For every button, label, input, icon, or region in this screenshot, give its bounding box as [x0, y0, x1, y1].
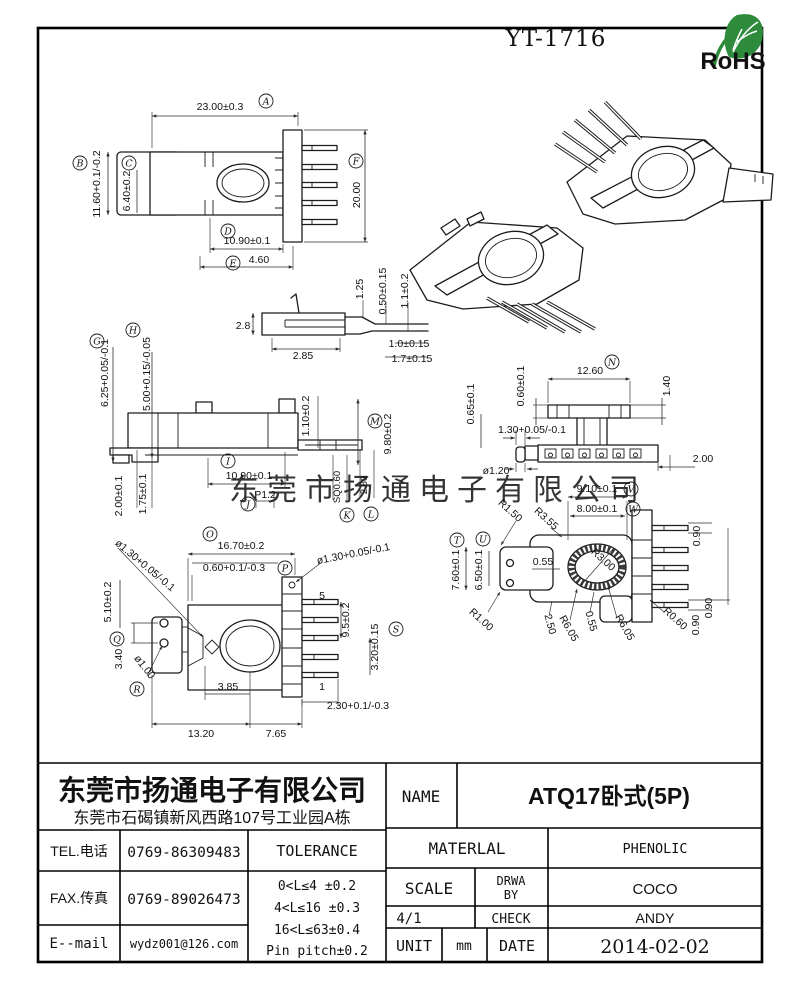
dim-J-val: P1.2 [254, 489, 276, 501]
dim-3-85: 3.85 [218, 681, 239, 693]
letter-A: A [262, 97, 270, 108]
dim-R6-05a: R6.05 [556, 613, 580, 643]
letter-T: T [454, 536, 461, 547]
letter-I: I [225, 457, 230, 468]
dim-3-20: 3.20±0.15 [369, 624, 381, 671]
tel-value: 0769-86309483 [127, 845, 241, 861]
iso-pins-lower [487, 298, 595, 332]
tolerance-line-2: 4<L≤16 ±0.3 [274, 901, 360, 916]
check-label: CHECK [491, 912, 530, 927]
letter-D: D [223, 227, 232, 238]
date-value: 2014-02-02 [600, 936, 710, 958]
dim-2-00: 2.00±0.1 [113, 475, 125, 516]
unit-value: mm [456, 939, 472, 954]
material-label: MATERLAL [428, 839, 505, 858]
dim-1-30: 1.30+0.05/-0.1 [498, 424, 566, 436]
dim-0-50: 0.50±0.15 [377, 268, 389, 315]
company-name: 东莞市扬通电子有限公司 [58, 774, 366, 806]
tolerance-line-1: 0<L≤4 ±0.2 [278, 879, 356, 894]
pins-core-view [652, 526, 688, 608]
dim-M-val: 9.80±0.2 [382, 413, 394, 454]
name-label: NAME [402, 787, 441, 806]
dim-0-55a: 0.55 [533, 556, 554, 568]
dim-H: 5.00+0.15/-0.05 [141, 337, 153, 411]
dim-7-60: 7.60±0.1 [450, 549, 462, 590]
dim-1-75: 1.75±0.1 [137, 473, 149, 514]
dim-K-val: SQ0.60 [332, 471, 343, 503]
dim-12-60: 12.60 [577, 365, 603, 377]
iso-bobbin-upper [555, 102, 773, 224]
date-label: DATE [499, 937, 535, 955]
dim-0-90a: 0.90 [691, 526, 703, 547]
rohs-label: RoHS [700, 48, 765, 75]
dim-B: 11.60+0.1/-0.2 [91, 150, 103, 217]
unit-label: UNIT [396, 937, 432, 955]
dim-0-60b: 0.60+0.1/-0.3 [203, 562, 265, 574]
dim-G: 6.25+0.05/-0.1 [99, 339, 111, 407]
dim-E: 4.60 [249, 254, 270, 266]
dim-dia-1-30-left: ø1.30+0.05/-0.1 [113, 537, 178, 594]
view-pin-detail: 2.8 1.25 0.50±0.15 1.1±0.2 2.85 1.0±0.15… [236, 268, 433, 365]
dim-2-8: 2.8 [236, 320, 251, 332]
dim-9-10: 9.10±0.1 [577, 483, 618, 495]
dim-0-90c: 0.90 [690, 615, 702, 636]
dim-dia-1-20: ø1.20 [483, 465, 510, 477]
letter-P: P [281, 564, 289, 575]
letter-B: B [76, 159, 84, 170]
dim-1-10: 1.10±0.2 [300, 395, 312, 436]
letter-H: H [128, 326, 138, 337]
letter-O: O [206, 530, 214, 541]
dim-1-0: 1.0±0.15 [389, 338, 430, 350]
dim-A: 23.00±0.3 [197, 101, 244, 113]
letter-G: G [93, 337, 101, 348]
letter-M: M [369, 417, 380, 428]
drwa-by-label-2: BY [504, 888, 519, 902]
dim-2-00b: 2.00 [693, 453, 714, 465]
pin-number-5: 5 [319, 590, 325, 602]
dim-1-1: 1.1±0.2 [399, 273, 411, 308]
letter-R: R [132, 685, 140, 696]
letter-F: F [352, 157, 360, 168]
scale-value: 4/1 [396, 911, 421, 927]
dim-6-50: 6.50±0.1 [473, 549, 485, 590]
letter-E: E [229, 259, 237, 270]
tel-label: TEL.电话 [50, 843, 108, 859]
dim-2-50: 2.50 [541, 613, 558, 636]
letter-U: U [479, 535, 488, 546]
dim-1-40: 1.40 [661, 376, 673, 397]
dim-3-40: 3.40 [113, 649, 125, 670]
tolerance-line-4: Pin pitch±0.2 [266, 944, 368, 959]
dim-8-00: 8.00±0.1 [577, 503, 618, 515]
drwa-by-value: COCO [633, 881, 678, 898]
view-end: 12.60 0.60±0.1 1.40 0.65±0.1 1.30+0.05/-… [465, 365, 713, 477]
title-block: 东莞市扬通电子有限公司 东莞市石碣镇新风西路107号工业园A栋 TEL.电话 0… [38, 763, 762, 962]
email-value: wydz001@126.com [130, 937, 238, 951]
check-value: ANDY [636, 910, 676, 926]
pins-top-view [302, 146, 337, 225]
letter-S: S [393, 625, 400, 636]
fax-label: FAX.传真 [50, 890, 108, 906]
drawing-sheet: YT-1716 RoHS 东莞市扬通电子有限公司 23.00±0.3 [0, 0, 800, 990]
letter-Q: Q [113, 635, 121, 646]
isometric-view [410, 102, 773, 332]
dim-16-70: 16.70±0.2 [218, 540, 265, 552]
view-core: 9.10±0.1 8.00±0.1 7.60±0.1 6.50±0.1 R1.5… [450, 483, 730, 644]
tolerance-line-3: 16<L≤63±0.4 [274, 923, 360, 938]
pins-bottom-view [302, 600, 338, 678]
dim-0-55b: 0.55 [582, 610, 599, 633]
drwa-by-label-1: DRWA [497, 874, 527, 888]
view-top: 23.00±0.3 11.60+0.1/-0.2 6.40±0.2 10.90±… [91, 101, 368, 270]
rohs-logo: RoHS [700, 14, 765, 75]
dim-F: 20.00 [351, 182, 363, 208]
dim-0-60: 0.60±0.1 [515, 365, 527, 406]
dim-L-val: 2.80 [359, 476, 370, 495]
dim-0-65: 0.65±0.1 [465, 383, 477, 424]
company-address: 东莞市石碣镇新风西路107号工业园A栋 [73, 809, 350, 827]
material-value: PHENOLIC [622, 841, 687, 857]
dim-1-25: 1.25 [354, 279, 366, 300]
dim-dia-1-30-right: ø1.30+0.05/-0.1 [316, 541, 392, 567]
letter-K: K [342, 511, 351, 522]
view-bottom: 16.70±0.2 0.60+0.1/-0.3 ø1.30+0.05/-0.1 … [102, 537, 391, 740]
dim-C: 6.40±0.2 [121, 170, 133, 211]
dim-R0-60: R0.60 [661, 605, 690, 633]
dim-2-85: 2.85 [293, 350, 314, 362]
dim-R3-55: R3.55 [532, 505, 561, 533]
dim-2-30: 2.30+0.1/-0.3 [327, 700, 389, 712]
letter-C: C [125, 159, 133, 170]
iso-bobbin-lower [410, 212, 595, 332]
letter-L: L [367, 510, 374, 521]
letter-W: W [628, 505, 639, 516]
letter-N: N [607, 358, 617, 369]
dim-I-val: 10.90±0.1 [226, 470, 273, 482]
fax-value: 0769-89026473 [127, 892, 241, 908]
dim-R1-00: R1.00 [467, 606, 496, 634]
email-label: E--mail [49, 936, 108, 952]
dim-0-90b: 0.90 [703, 598, 715, 619]
dim-1-7: 1.7±0.15 [392, 353, 433, 365]
pin-number-1: 1 [319, 681, 325, 693]
dim-5-10: 5.10±0.2 [102, 581, 114, 622]
part-name: ATQ17卧式(5P) [528, 783, 690, 809]
scale-label: SCALE [405, 879, 453, 898]
doc-number: YT-1716 [505, 26, 607, 52]
letter-V: V [628, 485, 636, 496]
dim-9-5: 9.5±0.2 [340, 602, 352, 637]
dim-7-65: 7.65 [266, 728, 287, 740]
tolerance-label: TOLERANCE [276, 842, 357, 860]
dim-13-20: 13.20 [188, 728, 214, 740]
